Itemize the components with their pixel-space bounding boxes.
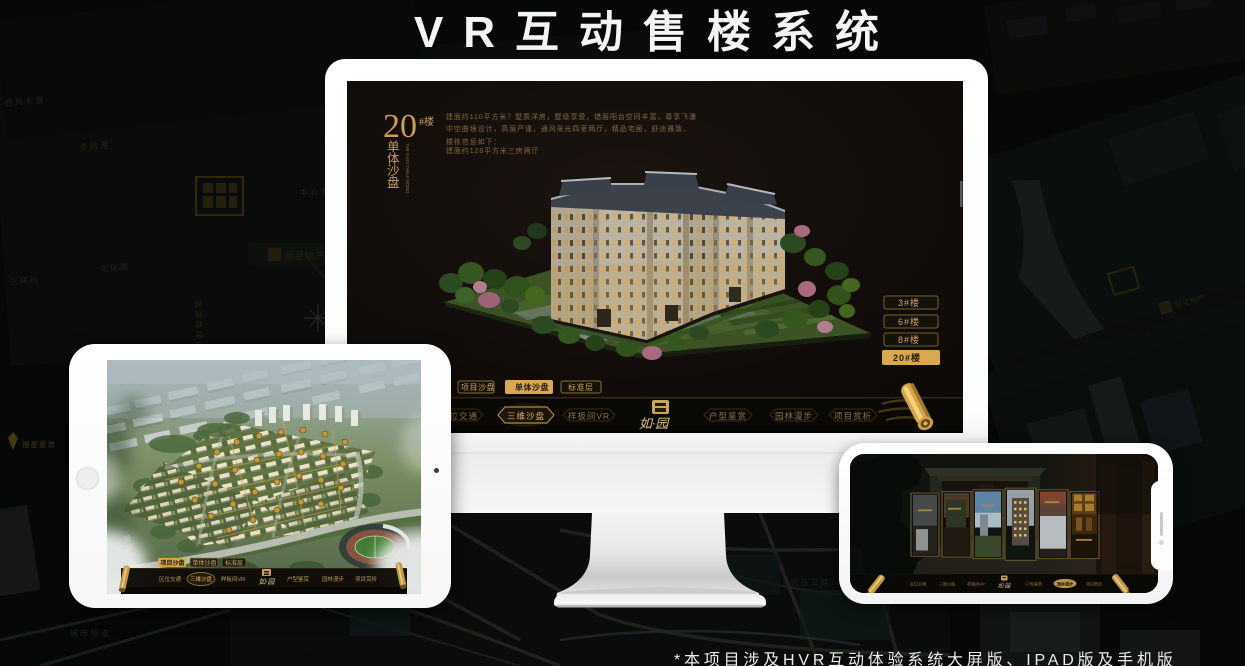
svg-text:项目赏析: 项目赏析 [834,411,872,421]
svg-text:样板间VR: 样板间VR [967,581,985,587]
svg-text:福星惠誉: 福星惠誉 [22,439,56,449]
svg-text:样板间VR: 样板间VR [568,411,610,421]
svg-text:城 市 綠 道: 城 市 綠 道 [70,628,109,638]
svg-text:三维沙盘: 三维沙盘 [190,575,213,583]
svg-text:户型鉴赏: 户型鉴赏 [1026,581,1042,587]
svg-text:20#楼: 20#楼 [893,352,921,363]
svg-text:单体沙盘: 单体沙盘 [193,559,217,567]
svg-text:6#楼: 6#楼 [898,316,920,327]
svg-text:园林漫步: 园林漫步 [1057,581,1073,587]
svg-text:项目赏析: 项目赏析 [1086,581,1102,587]
svg-text:3#楼: 3#楼 [898,297,920,308]
svg-text:园林漫步: 园林漫步 [322,575,345,583]
svg-text:滨 湖 路 绿 道: 滨 湖 路 绿 道 [193,300,205,349]
svg-text:THE SAND TABLE MODEL: THE SAND TABLE MODEL [405,143,410,195]
svg-text:中空曲境设计，高层严谨，通风采光四室两厅，精品宅居，舒适雅致: 中空曲境设计，高层严谨，通风采光四室两厅，精品宅居，舒适雅致． [446,124,691,133]
svg-text:标准层: 标准层 [225,559,243,567]
svg-text:8#楼: 8#楼 [898,334,920,345]
svg-text:光 谷 三 路: 光 谷 三 路 [790,577,829,587]
svg-text:园林漫步: 园林漫步 [775,411,813,421]
svg-text:区位交通: 区位交通 [159,575,182,583]
svg-text:#楼: #楼 [419,115,434,128]
svg-text:盘: 盘 [387,175,400,190]
svg-text:三维沙盘: 三维沙盘 [507,411,545,421]
svg-text:区位交通: 区位交通 [910,581,926,587]
svg-text:如·园: 如·园 [998,583,1012,590]
svg-text:户型鉴赏: 户型鉴赏 [709,411,747,421]
svg-text:标准层: 标准层 [568,382,594,392]
svg-text:项目沙盘: 项目沙盘 [161,559,185,567]
svg-text:建面约128平方米三房两厅: 建面约128平方米三房两厅 [446,146,539,155]
svg-text:建面约110平方米？墅质洋房，墅级享受，错层阳台空间丰富，尊: 建面约110平方米？墅质洋房，墅级享受，错层阳台空间丰富，尊享飞瀑 [446,112,697,121]
svg-text:福星地产: 福星地产 [285,250,325,261]
svg-text:如·园: 如·园 [639,416,670,431]
svg-text:样板间VR: 样板间VR [221,575,245,583]
svg-text:三维沙盘: 三维沙盘 [939,581,955,587]
svg-text:单体沙盘: 单体沙盘 [515,382,549,392]
svg-text:项目沙盘: 项目沙盘 [461,382,495,392]
svg-text:项目赏析: 项目赏析 [355,575,378,583]
svg-text:楼栋信息如下：: 楼栋信息如下： [446,137,501,146]
svg-text:如·园: 如·园 [259,578,276,586]
svg-text:户型鉴赏: 户型鉴赏 [287,575,310,583]
